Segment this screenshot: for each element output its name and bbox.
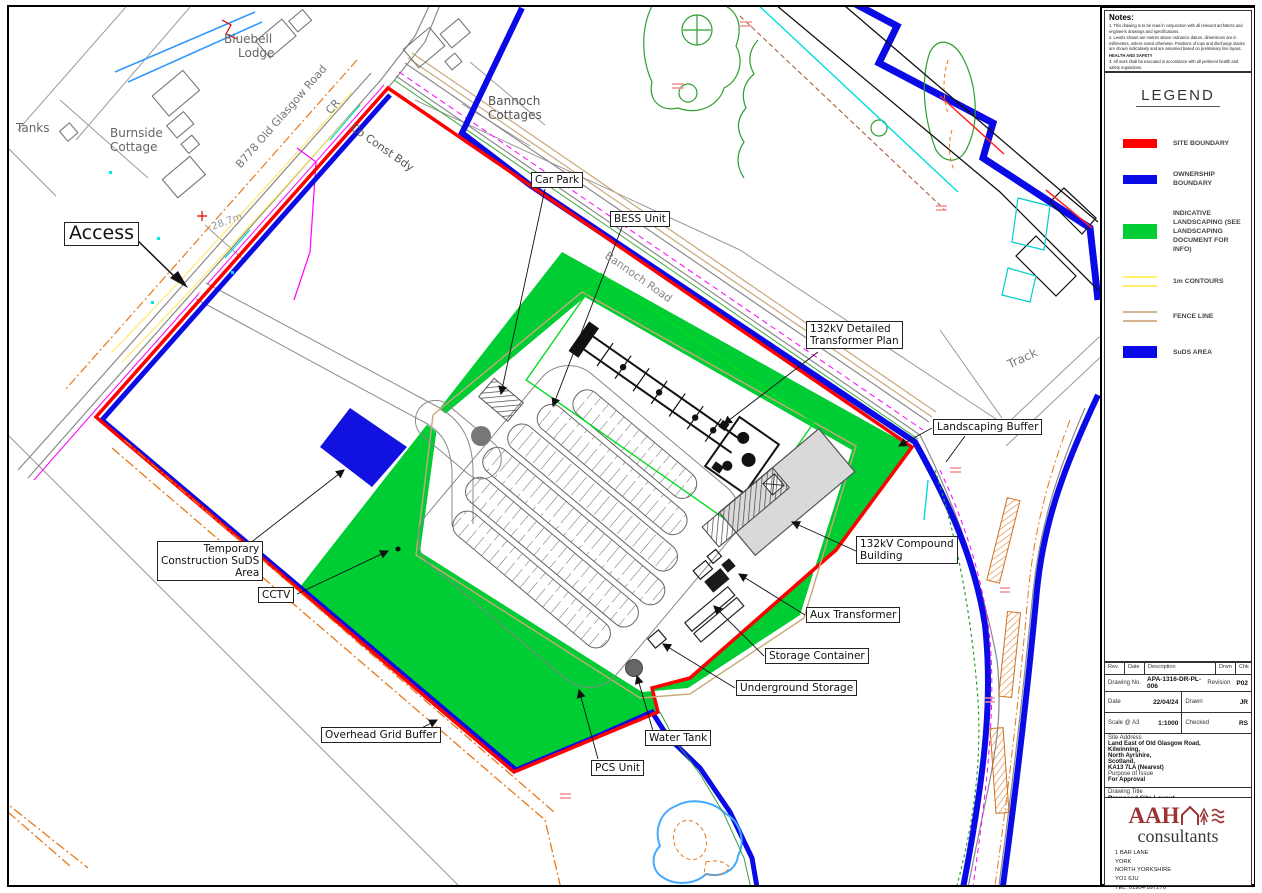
- storage-container-unit: [685, 587, 744, 642]
- drawing-no-row: Drawing No. APA-1316-DR-PL-006 Revision …: [1105, 675, 1251, 692]
- date-value: 22/04/24: [1153, 699, 1178, 706]
- checked-value: RS: [1239, 720, 1248, 727]
- purpose-value: For Approval: [1108, 777, 1248, 783]
- note-line: 1. This drawing is to be read in conjunc…: [1109, 23, 1247, 34]
- top-right-roads: [740, 0, 1098, 302]
- callout-pcs-unit: PCS Unit: [591, 760, 644, 776]
- firm-address: 1 BAR LANE YORK NORTH YORKSHIRE YO1 6JU …: [1115, 849, 1245, 893]
- revision-value: P02: [1233, 679, 1251, 688]
- drawing-number: APA-1316-DR-PL-006: [1144, 675, 1204, 691]
- firm-box: AAH consultants 1 BAR LANE YORK NORTH YO…: [1104, 798, 1252, 886]
- firm-logo: AAH: [1111, 803, 1245, 827]
- water-tank-unit: [626, 660, 643, 677]
- drawn-value: JR: [1240, 699, 1248, 706]
- access-driveway: [196, 283, 473, 526]
- callout-access: Access: [64, 222, 139, 246]
- aah-logo-icon: [1180, 803, 1228, 827]
- legend-item: SITE BOUNDARY: [1123, 139, 1251, 148]
- label-bluebell-lodge: Bluebell Lodge: [224, 32, 274, 60]
- callout-underground-storage: Underground Storage: [736, 680, 857, 696]
- landscaping-swatch: [1123, 224, 1157, 239]
- scale-checked-row: Scale @ A3 1:1000 Checked RS: [1105, 713, 1251, 734]
- note-line: 2. Levels shown are metres above ordnanc…: [1109, 35, 1247, 52]
- drawing-sheet: Access Car Park BESS Unit 132kV Detailed…: [0, 0, 1262, 893]
- callout-water-tank: Water Tank: [645, 730, 711, 746]
- scale-value: 1:1000: [1158, 720, 1178, 727]
- callout-transformer-plan: 132kV DetailedTransformer Plan: [806, 321, 903, 349]
- callout-landscaping-buffer: Landscaping Buffer: [933, 419, 1042, 435]
- site-boundary-swatch: [1123, 139, 1157, 148]
- contours-swatch: [1123, 276, 1157, 287]
- legend-item: SuDS AREA: [1123, 346, 1251, 358]
- notes-title: Notes:: [1109, 13, 1247, 22]
- callout-compound-building: 132kV CompoundBuilding: [856, 536, 958, 564]
- scrub-area: [944, 60, 954, 170]
- note-line: 3. All work shall be executed in accorda…: [1109, 59, 1247, 70]
- revision-header-row: Rev. Date Description Drwn Chk: [1105, 663, 1251, 675]
- ownership-boundary-swatch: [1123, 175, 1157, 184]
- suds-swatch: [1123, 346, 1157, 358]
- title-block: Rev. Date Description Drwn Chk Drawing N…: [1104, 662, 1252, 798]
- callout-temp-suds: TemporaryConstruction SuDSArea: [157, 541, 263, 581]
- callout-car-park: Car Park: [531, 172, 583, 188]
- site-address-row: Site Address Land East of Old Glasgow Ro…: [1105, 734, 1251, 788]
- legend-title: LEGEND: [1136, 87, 1220, 107]
- callout-storage-container: Storage Container: [765, 648, 869, 664]
- fence-line-swatch: [1123, 311, 1157, 322]
- callout-aux-transformer: Aux Transformer: [806, 607, 900, 623]
- sheet-panel: Notes: 1. This drawing is to be read in …: [1100, 6, 1254, 886]
- aux-transformer-unit: [692, 547, 739, 593]
- callout-overhead-grid: Overhead Grid Buffer: [321, 727, 441, 743]
- underground-storage-unit: [648, 630, 666, 648]
- date-drawn-row: Date 22/04/24 Drawn JR: [1105, 692, 1251, 713]
- callout-bess-unit: BESS Unit: [610, 211, 670, 227]
- cctv-unit: [396, 547, 401, 552]
- tank-circle: [471, 426, 491, 446]
- label-burnside-cottage: BurnsideCottage: [110, 126, 163, 154]
- legend-box: LEGEND SITE BOUNDARY OWNERSHIP BOUNDARY …: [1104, 72, 1252, 662]
- legend-item: FENCE LINE: [1123, 311, 1251, 322]
- note-line: HEALTH AND SAFETY: [1109, 53, 1247, 59]
- notes-box: Notes: 1. This drawing is to be read in …: [1104, 10, 1252, 72]
- label-tanks: Tanks: [16, 121, 50, 135]
- label-bannoch-cottages: BannochCottages: [488, 94, 542, 122]
- legend-item: INDICATIVE LANDSCAPING (SEE LANDSCAPING …: [1123, 209, 1251, 255]
- legend-item: OWNERSHIP BOUNDARY: [1123, 170, 1251, 188]
- callout-cctv: CCTV: [258, 587, 294, 603]
- legend-item: 1m CONTOURS: [1123, 276, 1251, 287]
